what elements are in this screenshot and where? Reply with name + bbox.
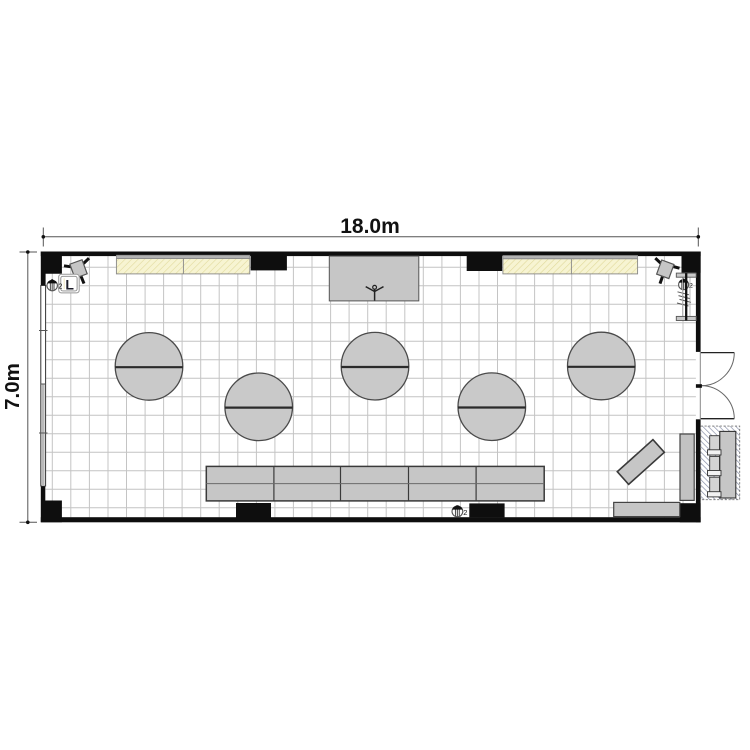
svg-text:2: 2	[689, 281, 693, 290]
svg-text:L: L	[65, 276, 74, 292]
svg-text:7.0m: 7.0m	[1, 363, 24, 410]
svg-text:2: 2	[463, 508, 467, 517]
svg-text:2: 2	[58, 282, 62, 291]
svg-text:18.0m: 18.0m	[340, 215, 400, 238]
